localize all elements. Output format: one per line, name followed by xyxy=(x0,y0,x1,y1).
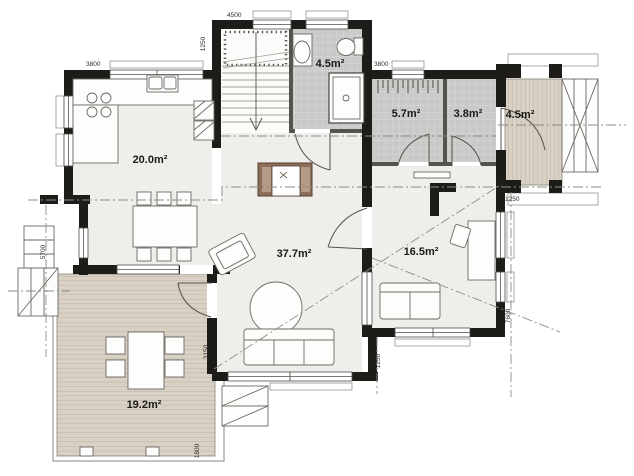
window xyxy=(64,96,73,128)
kitchen-counter-left xyxy=(73,105,118,163)
porch-post xyxy=(505,64,521,78)
dim-east-side: 7600 xyxy=(505,308,512,323)
chair xyxy=(177,248,191,261)
dim-top-block-offset: 1250 xyxy=(200,36,207,51)
window xyxy=(228,372,290,381)
room-label-bathroom: 4.5m² xyxy=(316,58,345,70)
window-sill xyxy=(507,272,514,302)
porch-post xyxy=(549,64,562,78)
terrace-table xyxy=(128,332,164,389)
window-sill xyxy=(110,61,203,68)
window xyxy=(496,212,505,258)
room-label-storage: 5.7m² xyxy=(392,108,421,120)
chair xyxy=(157,248,171,261)
dining-table xyxy=(133,206,197,247)
window xyxy=(395,328,470,337)
dim-west-side: 5700 xyxy=(40,244,47,259)
dim-top-block-width: 4500 xyxy=(227,12,242,19)
washbasin xyxy=(294,41,310,63)
window xyxy=(64,134,73,166)
porch-deck xyxy=(505,79,562,185)
shower xyxy=(329,73,364,123)
window-sill xyxy=(253,11,291,18)
porch-post xyxy=(549,180,562,193)
window-sill xyxy=(306,11,348,18)
dim-terrace-step: 1800 xyxy=(194,443,201,458)
fireplace xyxy=(258,163,312,196)
room-label-terrace: 19.2m² xyxy=(127,399,162,411)
dining-set xyxy=(133,192,197,261)
chair xyxy=(137,192,151,205)
dim-east-wing-width: 3800 xyxy=(374,61,389,68)
exterior-stairs-west xyxy=(18,226,58,316)
porch-railing-bottom xyxy=(508,193,598,205)
chair xyxy=(177,192,191,205)
window-sill xyxy=(392,61,424,68)
room-label-entry-porch: 4.5m² xyxy=(506,109,535,121)
window xyxy=(306,20,348,29)
room-label-living-room: 37.7m² xyxy=(277,248,312,260)
kitchen-counter-top xyxy=(73,79,212,105)
dim-southeast-offset: 1250 xyxy=(375,353,382,368)
round-table xyxy=(250,282,302,334)
chair xyxy=(165,337,184,354)
dim-terrace-side: 3150 xyxy=(203,344,210,359)
window xyxy=(392,70,424,79)
window xyxy=(290,372,352,381)
floor-plan-page: 4500 1250 3800 3800 5700 7600 1250 1250 … xyxy=(0,0,634,476)
window-sill xyxy=(56,96,64,128)
window xyxy=(79,228,88,258)
chair xyxy=(137,248,151,261)
window xyxy=(253,20,291,29)
storage-floor xyxy=(372,79,443,162)
sofa xyxy=(244,329,334,365)
chair xyxy=(157,192,171,205)
chair xyxy=(106,337,125,354)
dim-kitchen-width: 3800 xyxy=(86,61,101,68)
wc-floor xyxy=(447,79,496,162)
room-label-bedroom: 16.5m² xyxy=(404,246,439,258)
bedroom-sofa xyxy=(380,283,440,319)
window-sill xyxy=(56,134,64,166)
chair xyxy=(165,360,184,377)
room-label-kitchen: 20.0m² xyxy=(133,154,168,166)
room-label-wc: 3.8m² xyxy=(454,108,483,120)
kitchen-sink xyxy=(147,75,178,92)
terrace-post xyxy=(146,447,159,456)
window xyxy=(117,265,179,274)
desk xyxy=(468,221,495,280)
floor-plan-drawing: 4500 1250 3800 3800 5700 7600 1250 1250 … xyxy=(0,0,634,476)
window-sill xyxy=(507,212,514,258)
terrace-post xyxy=(80,447,93,456)
dim-porch-depth: 1250 xyxy=(505,196,520,203)
stair-hall-floor xyxy=(221,29,290,133)
window-sill xyxy=(270,383,352,390)
shelf xyxy=(414,172,450,178)
window xyxy=(362,272,372,325)
window-sill xyxy=(395,339,470,346)
exterior-steps-south xyxy=(222,386,268,426)
chair xyxy=(106,360,125,377)
porch-post xyxy=(505,180,521,193)
window xyxy=(496,272,505,302)
toilet-bowl xyxy=(337,39,355,56)
